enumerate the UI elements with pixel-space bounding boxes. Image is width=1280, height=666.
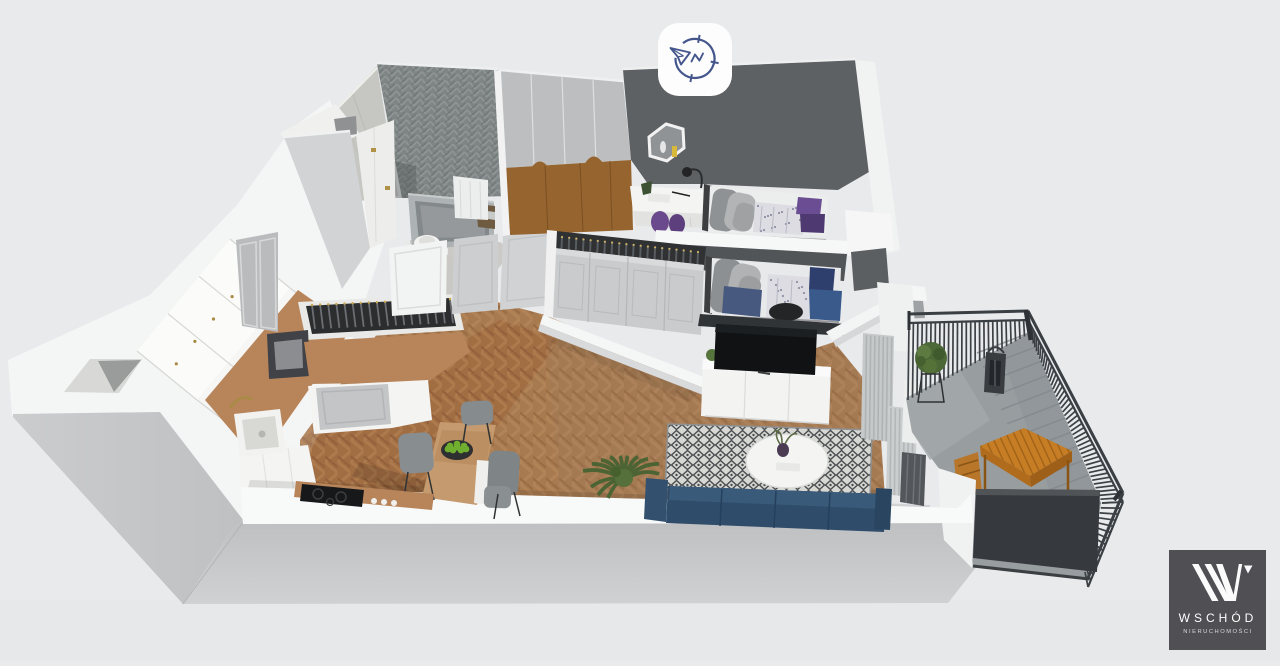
svg-text:WSCHÓD: WSCHÓD — [1179, 610, 1258, 625]
svg-text:NIERUCHOMOŚCI: NIERUCHOMOŚCI — [1183, 627, 1252, 635]
